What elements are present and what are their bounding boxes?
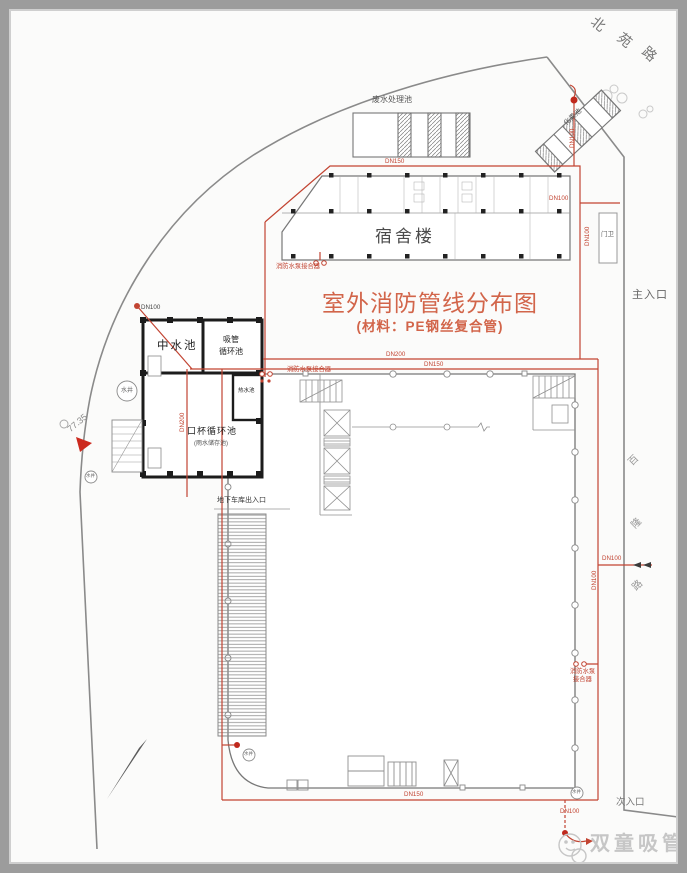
pipe-label-dn150-main-top: DN150	[424, 362, 443, 368]
dormitory-label: 宿舍楼	[375, 228, 435, 245]
pipe-label-dn200-main-top: DN200	[386, 352, 405, 358]
septic-tank-outline	[536, 90, 621, 172]
fire-pump-connector-label-2: 消防水泵接合器	[287, 367, 331, 373]
hot-water-pool-label: 热水池	[238, 389, 255, 395]
pipe-label-dn100-right-vert: DN100	[592, 571, 598, 590]
pipe-label-dn200-left: DN200	[180, 413, 186, 432]
fire-pump-connector-label-3-line1: 消防水泵	[570, 669, 595, 675]
cup-pool-sublabel: (雨水储存池)	[194, 441, 228, 447]
secondary-entrance-label: 次入口	[616, 798, 645, 808]
dormitory-building	[282, 173, 570, 260]
pipe-label-dn150-bottom: DN150	[404, 792, 423, 798]
pipe-label-dn150-dorm-top: DN150	[385, 159, 404, 165]
site-plan-drawing	[0, 0, 687, 873]
fire-pump-connector-label-1: 消防水泵接合器	[276, 264, 320, 270]
pipe-label-dn100-dorm-right: DN100	[585, 227, 591, 246]
water-well-label-3: 水井	[244, 752, 253, 757]
guard-post-label: 门卫	[601, 232, 614, 239]
drawing-title: 室外消防管线分布图	[310, 292, 550, 315]
main-building	[225, 371, 578, 790]
straw-pool-label-line1: 吸管	[223, 336, 239, 344]
slope-arrow	[107, 739, 147, 799]
pipe-label-dn100-exit: DN100	[560, 809, 579, 815]
pipe-label-dn100-septic: DN100	[570, 129, 576, 148]
drawing-subtitle: (材料：PE钢丝复合管)	[310, 320, 550, 334]
watermark-text: 双童吸管	[590, 834, 686, 854]
watermark-logo	[559, 834, 586, 863]
wastewater-pool-outline	[353, 113, 470, 157]
water-well-label-2: 水井	[86, 474, 95, 479]
pipe-label-dn100-right-arrow: DN100	[602, 556, 621, 562]
main-entrance-label: 主入口	[632, 290, 668, 301]
cup-pool-label: 口杯循环池	[187, 427, 237, 436]
garage-entrance-label: 地下车库出入口	[217, 497, 266, 504]
fire-pump-connector-label-3-line2: 接合器	[573, 677, 592, 683]
site-plan-page: 北 苑 路 百 隆 路 主入口 次入口 门卫 室外消防管线分布图 (材料：PE钢…	[0, 0, 687, 873]
wastewater-pool-label: 废水处理池	[372, 96, 412, 104]
water-well-label-4: 水井	[572, 790, 581, 795]
pipe-label-dn100-topleft: DN100	[141, 305, 160, 311]
reclaimed-water-pool-label: 中水池	[157, 341, 198, 353]
straw-pool-label-line2: 循环池	[219, 348, 243, 356]
water-well-label-1: 水井	[121, 388, 133, 394]
pipe-label-dn100-dorm-branch: DN100	[549, 196, 568, 202]
